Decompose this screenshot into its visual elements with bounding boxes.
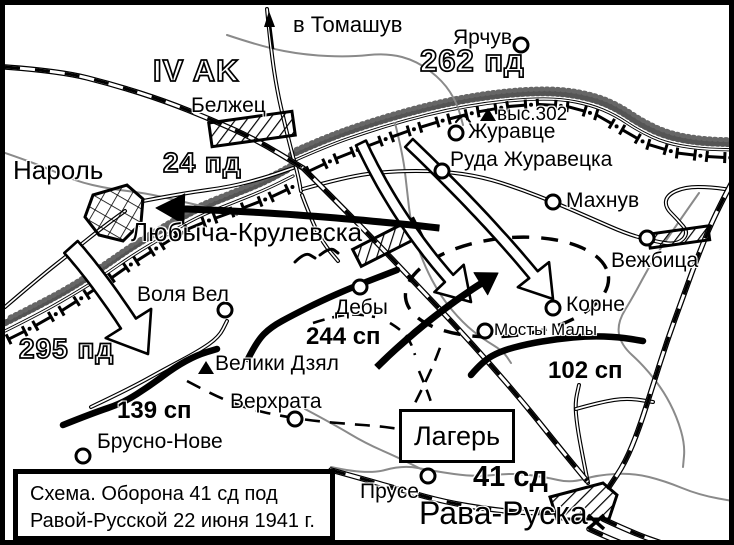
label-lyubycha-krulevska: Любыча-Крулевска [131,219,362,245]
settlement-circle-deby [353,280,367,294]
label-belzhec: Белжец [191,95,266,116]
settlement-circle-verhrata [288,412,302,426]
label-vezhbica: Вежбица [611,250,698,271]
label-mahnuv: Махнув [566,190,639,211]
map-canvas [5,5,734,545]
label-volya-vel: Воля Вел [137,284,229,305]
unit-label-102-sp: 102 сп [548,359,623,383]
settlement-circle-mosty-maly [478,324,492,338]
label-brusno-nove: Брусно-Нове [97,431,223,452]
label-verhrata: Верхрата [230,391,322,412]
unit-label-244-sp: 244 сп [306,325,381,349]
camp-box-label: Лагерь [414,421,500,452]
railway-dashes [603,519,667,545]
settlement-circle-korne [546,301,560,315]
height-triangle-veliki-dzyal [198,361,214,374]
caption-line-2: Равой-Русской 22 июня 1941 г. [30,508,318,535]
label-deby: Дебы [335,297,388,318]
settlement-circle-vezhbica [640,231,654,245]
label-korne: Корне [566,294,625,315]
settlement-circle-brusno-nove [76,449,90,463]
railway-core [609,171,734,487]
label-mosty-maly: Мосты Малы [494,321,597,338]
settlement-circle-pruse [421,469,435,483]
label-to-tomashuv: в Томашув [293,14,402,36]
unit-label-295-pd: 295 пд [19,335,114,363]
settlement-circle-zhuravce [449,126,463,140]
label-vys-302: выс.302 [497,105,567,124]
map-caption-box: Схема. Оборона 41 сд под Равой-Русской 2… [13,469,335,541]
label-pruse: Прусе [360,481,419,502]
camp-box: Лагерь [399,409,515,463]
unit-label-41-sd: 41 сд [473,463,548,492]
map-frame: НарольБелжецЯрчувЖуравцеРуда ЖуравецкаМа… [0,0,734,545]
settlement-circle-mahnuv [546,195,560,209]
label-rava-ruska: Рава-Руска [419,497,588,529]
unit-label-24-pd: 24 пд [163,149,242,177]
caption-line-1: Схема. Оборона 41 сд под [30,481,318,508]
label-narol: Нароль [13,157,103,183]
dashed-boundary [419,371,433,408]
unit-label-iv-ak: IV AK [153,55,240,86]
broken-position-mark [295,254,315,262]
unit-label-262-pd: 262 пд [420,45,525,76]
settlement-circle-ruda-zhuravecka [435,164,449,178]
label-veliki-dzyal: Велики Дзял [215,353,339,374]
unit-label-139-sp: 139 сп [117,399,192,423]
label-ruda-zhuravecka: Руда Журавецка [450,149,612,170]
